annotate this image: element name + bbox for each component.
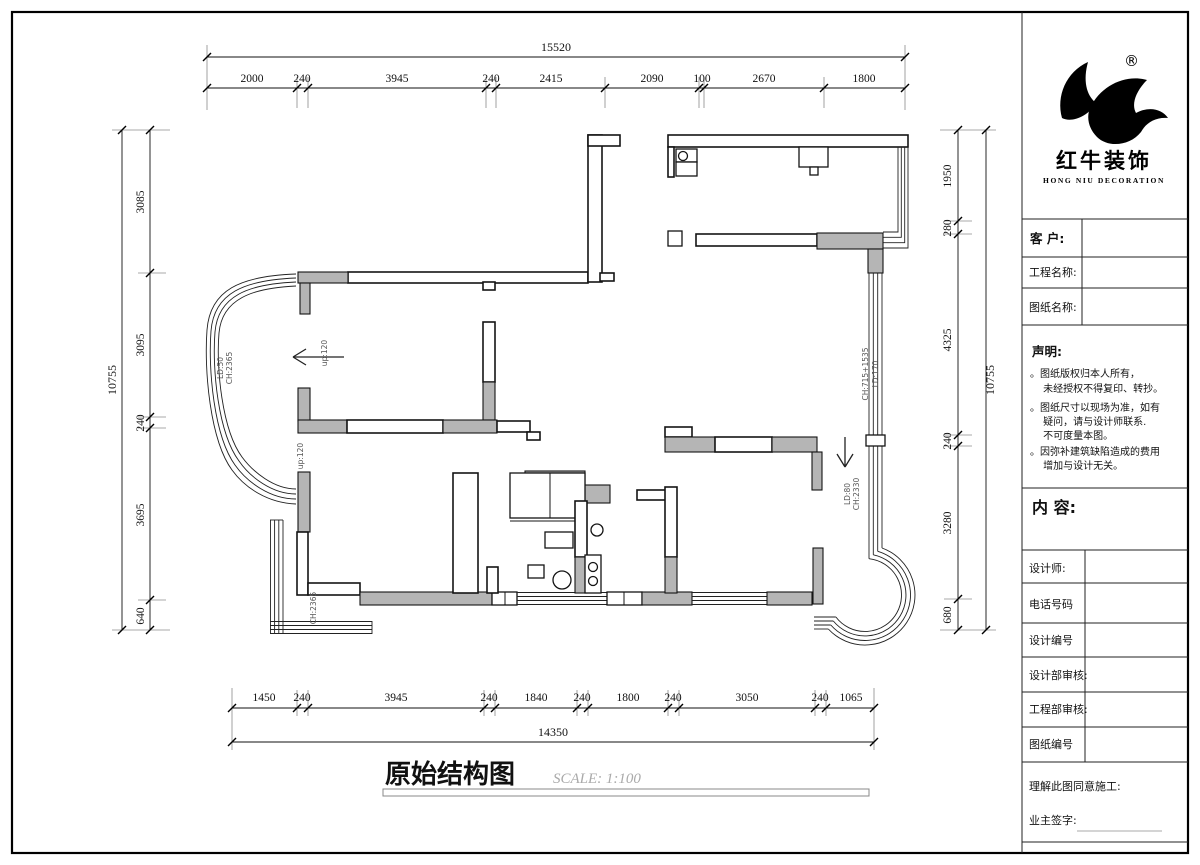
- wall-notch: [665, 427, 692, 437]
- dim-top-seg: 2000: [241, 73, 264, 85]
- fixture-cabinet: [676, 162, 697, 176]
- statement-line: 未经授权不得复印、转抄。: [1030, 382, 1163, 395]
- annotation-ld170: LD:170: [871, 360, 880, 387]
- logo-name-cn: 红牛装饰: [1056, 149, 1152, 173]
- annotation-ch2330: CH:2330: [852, 478, 861, 511]
- annotation-ld50: LD:50: [216, 357, 225, 379]
- row-drawing-no: 图纸编号: [1029, 737, 1073, 751]
- logo-registered-mark: ®: [1124, 52, 1139, 70]
- dimensions-left: 10755 3085 3095 240 3695 640: [105, 126, 170, 634]
- dim-top-seg: 240: [293, 73, 311, 85]
- fixture-knob: [810, 167, 818, 175]
- basin-circle: [589, 563, 598, 572]
- wall-gray-bottom: [767, 592, 812, 605]
- fixture-box: [799, 147, 828, 167]
- row-design-review: 设计部审核:: [1029, 668, 1088, 682]
- statement-line: 。图纸尺寸以现场为准，如有: [1030, 401, 1160, 414]
- field-drawing: 图纸名称:: [1029, 300, 1077, 314]
- dim-right-total: 10755: [983, 365, 997, 395]
- wall-vertical-center: [588, 135, 602, 282]
- floor-plan: up:120 up:120 LD:50 CH:2365 LD:170 CH:71…: [206, 135, 915, 645]
- dim-top-seg: 2415: [540, 73, 563, 85]
- dim-top-seg: 3945: [386, 73, 409, 85]
- wall-middle-right: [497, 421, 530, 432]
- wall-gray: [665, 557, 677, 593]
- annotation-balcony-ch: CH:2365: [309, 592, 318, 625]
- dim-right-seg: 680: [942, 606, 954, 624]
- dim-left-seg: 3095: [135, 333, 147, 356]
- dim-right-seg: 4325: [942, 328, 954, 351]
- wall-foot: [527, 432, 540, 440]
- drawing-sheet: ® 红牛装饰 HONG NIU DECORATION 客 户: 工程名称: 图纸…: [0, 0, 1200, 865]
- statement-line: 。图纸版权归本人所有，: [1030, 367, 1140, 380]
- dimensions-right: 1950 280 4325 240 3280 680 10755: [940, 126, 997, 634]
- statement-title: 声明:: [1031, 344, 1062, 359]
- wall-gray: [813, 548, 823, 604]
- column-gray: [298, 472, 310, 532]
- statement-line: 不可度量本图。: [1030, 429, 1113, 442]
- wall-gray-bottom: [360, 592, 492, 605]
- dim-bottom-seg: 240: [664, 692, 682, 704]
- wall-gray: [868, 249, 883, 273]
- dim-bottom-seg: 1450: [253, 692, 276, 704]
- fixture-circle: [679, 152, 688, 161]
- annotation-ld80: LD:80: [843, 483, 852, 505]
- dim-left-seg: 640: [135, 607, 147, 625]
- dim-left-total: 10755: [105, 365, 119, 395]
- wall-gray: [665, 437, 715, 452]
- wall-gray: [772, 437, 817, 452]
- dim-bottom-seg: 1065: [840, 692, 863, 704]
- dim-bottom-seg: 1800: [617, 692, 640, 704]
- curved-window-left: [206, 274, 296, 504]
- counter: [510, 473, 585, 518]
- title-block: ® 红牛装饰 HONG NIU DECORATION 客 户: 工程名称: 图纸…: [1022, 52, 1188, 842]
- wall-gray: [298, 420, 347, 433]
- column-gray: [483, 382, 495, 420]
- dim-right-seg: 280: [942, 219, 954, 237]
- logo-tail-shape: [1088, 78, 1168, 144]
- statement-line: 增加与设计无关。: [1030, 459, 1123, 472]
- up-arrow-left: [293, 349, 344, 365]
- kitchen-core: [453, 471, 610, 593]
- dim-bottom-seg: 240: [293, 692, 311, 704]
- dim-bottom-seg: 240: [480, 692, 498, 704]
- wall-gray: [817, 233, 883, 249]
- fixture-box: [528, 565, 544, 578]
- dim-bottom-seg: 1840: [525, 692, 548, 704]
- annotation-up1: up:120: [320, 340, 329, 367]
- wall-top: [668, 135, 908, 147]
- sheet-title-group: 原始结构图 SCALE: 1:100: [383, 760, 869, 796]
- dimensions-top: 15520 2000 240 3945 240 2415 2090 100 26…: [203, 40, 909, 110]
- wall-segment: [715, 437, 772, 452]
- statement-line: 。因弥补建筑缺陷造成的费用: [1030, 445, 1160, 458]
- wall-stub: [483, 282, 495, 290]
- dim-right-seg: 240: [942, 432, 954, 450]
- dim-bottom-total: 14350: [538, 725, 568, 739]
- bottom-window-1: [517, 593, 607, 605]
- logo-name-en: HONG NIU DECORATION: [1043, 176, 1165, 185]
- agreement-label: 理解此图同意施工:: [1029, 779, 1121, 793]
- row-phone: 电话号码: [1029, 598, 1073, 611]
- dim-top-seg: 2090: [641, 73, 664, 85]
- wall-bottom: [696, 234, 817, 246]
- statement-line: 疑问，请与设计师联系.: [1030, 415, 1146, 428]
- top-right-room: [668, 135, 908, 273]
- dim-top-seg: 100: [693, 73, 711, 85]
- row-eng-review: 工程部审核:: [1029, 702, 1088, 716]
- drain-symbol: [591, 524, 603, 536]
- wall-gray: [443, 420, 497, 433]
- wall-stub: [637, 490, 667, 500]
- field-customer: 客 户:: [1029, 231, 1064, 246]
- basin-unit: [585, 555, 601, 593]
- content-label: 内 容:: [1032, 498, 1076, 517]
- dimensions-bottom: 1450 240 3945 240 1840 240 1800 240 3050…: [228, 688, 878, 750]
- annotation-ch715: CH:715+1535: [861, 347, 870, 400]
- wall-foot: [600, 273, 614, 281]
- column-gray: [298, 388, 310, 421]
- window-right-tall: [869, 273, 882, 559]
- wall-partition: [575, 501, 587, 557]
- wall-partition: [483, 322, 495, 382]
- window-mullion: [866, 435, 885, 446]
- wall-gray-bottom: [642, 592, 692, 605]
- balcony-window: [270, 520, 372, 634]
- dim-left-seg: 240: [135, 414, 147, 432]
- row-designer: 设计师:: [1029, 562, 1066, 575]
- dim-top-seg: 240: [482, 73, 500, 85]
- company-logo: ® 红牛装饰 HONG NIU DECORATION: [1043, 52, 1168, 185]
- dim-bottom-seg: 240: [811, 692, 829, 704]
- column-open: [668, 231, 682, 246]
- bay-window-curve: [814, 548, 915, 645]
- sheet-title-text: 原始结构图: [385, 760, 515, 789]
- dim-left-seg: 3695: [135, 503, 147, 526]
- window-right-top: [883, 147, 908, 248]
- down-arrow: [837, 437, 853, 467]
- dim-top-seg: 2670: [753, 73, 776, 85]
- dim-left-seg: 3085: [135, 190, 147, 213]
- statement-section: 声明: 。图纸版权归本人所有， 未经授权不得复印、转抄。 。图纸尺寸以现场为准，…: [1030, 344, 1163, 472]
- sheet-scale-text: SCALE: 1:100: [553, 771, 641, 787]
- bottom-window-2: [692, 593, 767, 605]
- shelf: [545, 532, 573, 548]
- dim-bottom-seg: 240: [573, 692, 591, 704]
- row-design-no: 设计编号: [1029, 633, 1073, 647]
- dim-bottom-seg: 3945: [385, 692, 408, 704]
- owner-sign-label: 业主签字:: [1029, 813, 1077, 827]
- wall-balcony-vertical: [297, 532, 308, 595]
- annotation-ch2365: CH:2365: [225, 352, 234, 385]
- wall-gray: [812, 452, 822, 490]
- dim-top-seg: 1800: [853, 73, 876, 85]
- duct-shaft: [453, 473, 478, 593]
- column-gray: [300, 283, 310, 314]
- dim-bottom-seg: 3050: [736, 692, 759, 704]
- column-gray: [298, 272, 348, 283]
- title-underline-bar: [383, 789, 869, 796]
- dim-right-seg: 3280: [942, 511, 954, 534]
- dim-right-seg: 1950: [942, 164, 954, 187]
- field-project: 工程名称:: [1029, 265, 1077, 279]
- wall-partition: [665, 487, 677, 557]
- wall-stub: [487, 567, 498, 593]
- wall-cap: [588, 135, 620, 146]
- dim-top-total: 15520: [541, 40, 571, 54]
- wall-middle: [347, 420, 443, 433]
- sink-circle: [553, 571, 571, 589]
- wall-stub: [668, 147, 674, 177]
- annotation-up2: up:120: [296, 443, 305, 470]
- wall-topleft-horizontal: [348, 272, 588, 283]
- basin-circle: [589, 577, 598, 586]
- cad-canvas: ® 红牛装饰 HONG NIU DECORATION 客 户: 工程名称: 图纸…: [0, 0, 1200, 865]
